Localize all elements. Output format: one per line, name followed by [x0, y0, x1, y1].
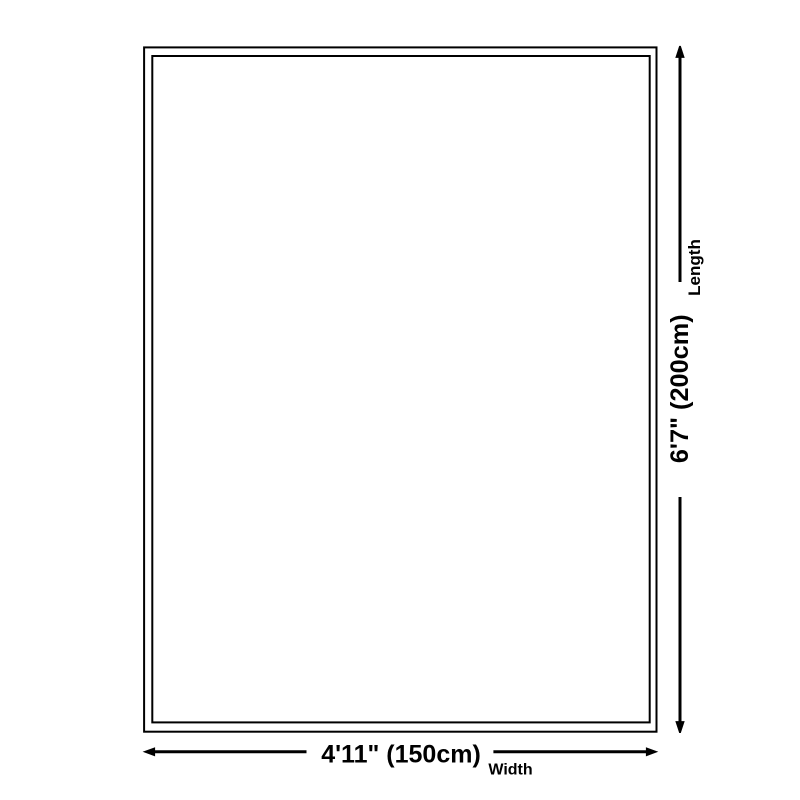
svg-text:Width: Width	[488, 761, 532, 778]
svg-text:6'7" (200cm): 6'7" (200cm)	[666, 314, 694, 463]
svg-text:4'11" (150cm): 4'11" (150cm)	[321, 741, 481, 769]
svg-text:Length: Length	[685, 239, 704, 296]
